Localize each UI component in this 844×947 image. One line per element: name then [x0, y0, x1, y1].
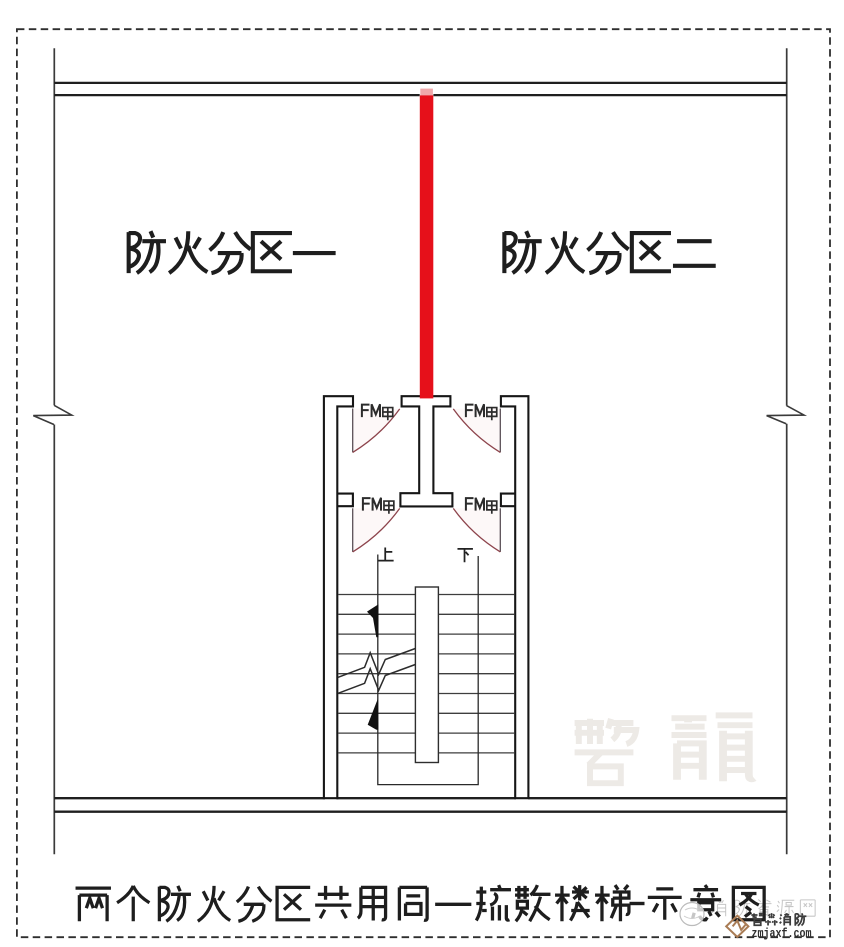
svg-text:zmjaxf.com: zmjaxf.com: [752, 927, 812, 941]
